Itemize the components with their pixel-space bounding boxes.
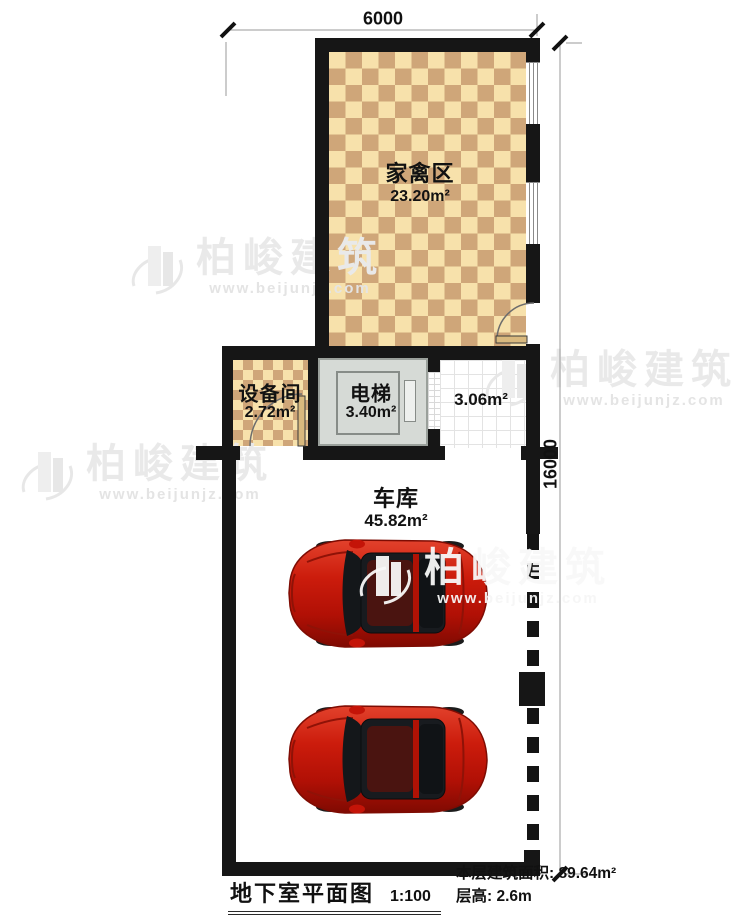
dimension-right: 16000: [541, 439, 562, 489]
room-area-equipment: 2.72m²: [245, 404, 296, 422]
watermark-brand: 柏峻建筑: [550, 350, 738, 390]
wall: [308, 358, 318, 446]
wall: [526, 448, 540, 534]
room-label-poultry: 家禽区: [385, 156, 454, 188]
elevator-door-panel: [404, 380, 416, 422]
room-label-equipment: 设备间: [239, 378, 302, 407]
plan-scale: 1:100: [390, 888, 431, 906]
watermark-url: www.beijunjz.com: [550, 392, 738, 409]
plan-title: 地下室平面图: [230, 876, 374, 908]
column: [519, 672, 545, 706]
wall: [526, 244, 540, 303]
wall: [526, 124, 540, 182]
window: [526, 62, 540, 126]
window: [526, 182, 540, 246]
wall: [222, 446, 236, 876]
room-area-elevator: 3.40m²: [346, 404, 397, 422]
title-block: 地下室平面图 1:100: [228, 876, 441, 915]
wall: [303, 446, 445, 460]
floor-area-text: 本层建筑面积: 89.64m²: [456, 866, 616, 882]
info-block: 本层建筑面积: 89.64m² 层高: 2.6m: [456, 866, 616, 904]
room-area-hall: 3.06m²: [454, 390, 508, 410]
building-logo-icon: [18, 444, 76, 506]
floor-height-text: 层高: 2.6m: [456, 889, 616, 905]
building-logo-icon: [128, 238, 186, 300]
wall: [315, 38, 329, 360]
wall: [315, 38, 540, 52]
room-area-poultry: 23.20m²: [390, 188, 450, 206]
room-label-garage: 车库: [373, 481, 419, 513]
room-label-elevator: 电梯: [350, 378, 392, 407]
elevator-opening: [428, 372, 440, 429]
wall: [524, 850, 540, 864]
wall: [222, 346, 233, 460]
floor-plan-canvas: 柏峻建筑 www.beijunjz.com 柏峻建筑 www.beijunjz.…: [0, 0, 750, 918]
room-area-garage: 45.82m²: [364, 511, 427, 531]
dimension-top: 6000: [363, 9, 403, 30]
wall: [526, 38, 540, 62]
